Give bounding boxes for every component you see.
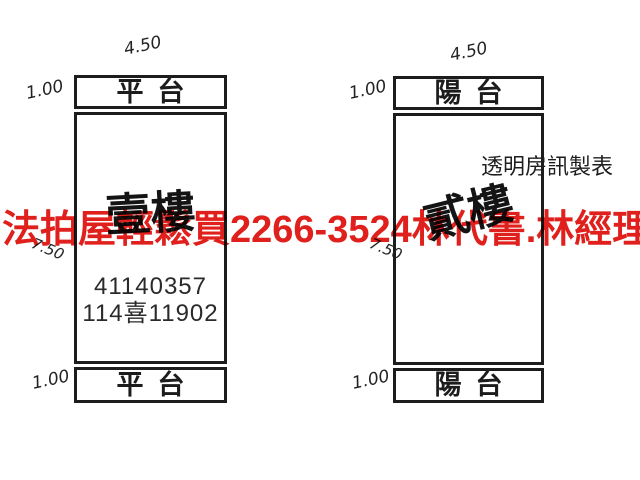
first-floor-registration-numbers: 41140357 114喜11902	[77, 273, 224, 327]
first-floor-bottom-platform-label: 平台	[103, 372, 199, 399]
dimension-depth-bottom-strip-second-floor: 1.00	[351, 368, 392, 392]
second-floor-bottom-balcony-strip: 陽台	[393, 368, 544, 403]
dimension-depth-top-strip-first-floor: 1.00	[25, 78, 66, 102]
first-floor-top-platform-label: 平台	[103, 79, 199, 106]
dimension-width-top-second-floor: 4.50	[449, 40, 490, 64]
floor-plan-sheet: 4.50 平台 1.00 壹樓 41140357 114喜11902 7.50 …	[0, 0, 640, 480]
first-floor-body: 壹樓 41140357 114喜11902	[74, 112, 227, 364]
first-floor-bottom-platform-strip: 平台	[74, 367, 227, 403]
dimension-depth-bottom-strip-first-floor: 1.00	[31, 368, 72, 392]
first-floor-handwritten-label: 壹樓	[76, 187, 225, 240]
maker-note-text: 透明房訊製表	[481, 149, 613, 181]
second-floor-bottom-balcony-label: 陽台	[421, 372, 517, 399]
dimension-height-first-floor: 7.50	[29, 236, 66, 262]
dimension-depth-top-strip-second-floor: 1.00	[348, 78, 389, 102]
second-floor-top-balcony-strip: 陽台	[393, 76, 544, 110]
second-floor-handwritten-label: 貳樓	[393, 173, 545, 252]
dimension-width-top-first-floor: 4.50	[123, 34, 164, 58]
first-floor-top-platform-strip: 平台	[74, 75, 227, 109]
registration-number-2: 114喜11902	[77, 300, 224, 327]
registration-number-1: 41140357	[77, 273, 224, 300]
second-floor-top-balcony-label: 陽台	[421, 80, 517, 107]
